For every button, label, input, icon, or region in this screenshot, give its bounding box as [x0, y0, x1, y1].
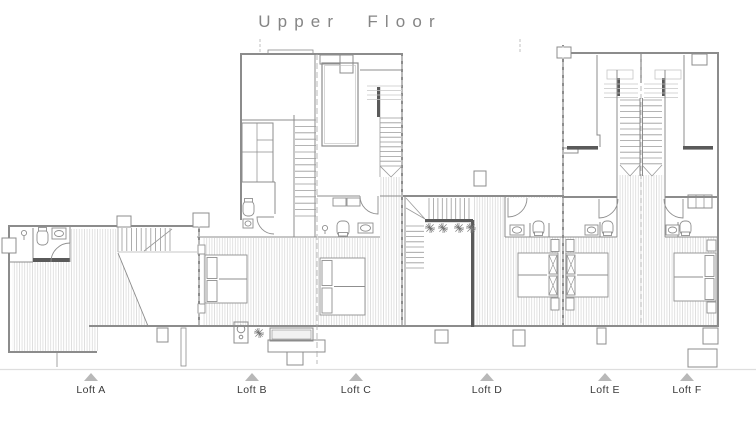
loft-label-c: Loft C [321, 373, 391, 396]
door-swing [599, 199, 618, 218]
loft-label-e: Loft E [570, 373, 640, 396]
bed-loft-c [320, 258, 365, 315]
loft-c-stair [380, 118, 402, 166]
loft-label-b: Loft B [217, 373, 287, 396]
plant-icon [254, 328, 264, 338]
door-swing [664, 199, 683, 218]
bed-loft-b [205, 255, 247, 303]
loft-label-a: Loft A [56, 373, 126, 396]
loft-c-hall-floor [380, 177, 402, 238]
bed-loft-f [674, 253, 716, 301]
loft-d-stair [429, 198, 469, 219]
shower-icon [322, 225, 327, 230]
up-triangle-icon [680, 373, 694, 381]
bed-loft-e [566, 253, 608, 297]
up-triangle-icon [245, 373, 259, 381]
plant-icon [454, 223, 464, 233]
loft-e-stair [620, 100, 640, 164]
loft-f-stair [643, 100, 663, 164]
plant-icon [438, 223, 448, 233]
up-triangle-icon [598, 373, 612, 381]
loft-c-stair-landing [367, 86, 402, 100]
loft-label-f: Loft F [652, 373, 722, 396]
door-swing [360, 196, 378, 214]
plant-icon [466, 223, 476, 233]
up-triangle-icon [349, 373, 363, 381]
loft-label-d: Loft D [452, 373, 522, 396]
toilet-icon [243, 201, 254, 216]
grid-tick [260, 39, 520, 53]
plant-icon [425, 223, 435, 233]
up-triangle-icon [480, 373, 494, 381]
bed-loft-d [518, 253, 558, 297]
floor-plan-drawing [0, 0, 756, 432]
loft-label-text: Loft E [570, 384, 640, 396]
toilet-icon [37, 230, 48, 245]
loft-f-stair-landing [655, 70, 681, 79]
up-triangle-icon [84, 373, 98, 381]
loft-label-text: Loft F [652, 384, 722, 396]
door-swing [257, 217, 274, 234]
sink-icon [243, 219, 253, 228]
loft-label-text: Loft D [452, 384, 522, 396]
loft-b-stair [295, 120, 316, 216]
loft-e-stair-landing [607, 70, 633, 79]
loft-label-text: Loft C [321, 384, 391, 396]
loft-label-text: Loft B [217, 384, 287, 396]
floor-plan-page: Upper Floor [0, 0, 756, 432]
loft-label-text: Loft A [56, 384, 126, 396]
